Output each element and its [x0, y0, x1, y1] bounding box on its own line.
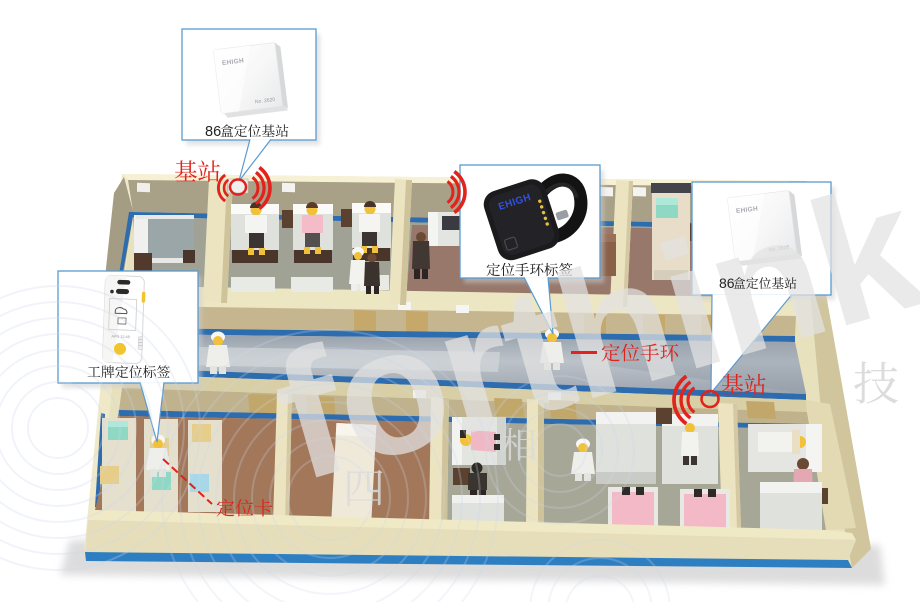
svg-text:86: 86: [205, 124, 221, 140]
svg-text:86: 86: [719, 275, 735, 291]
